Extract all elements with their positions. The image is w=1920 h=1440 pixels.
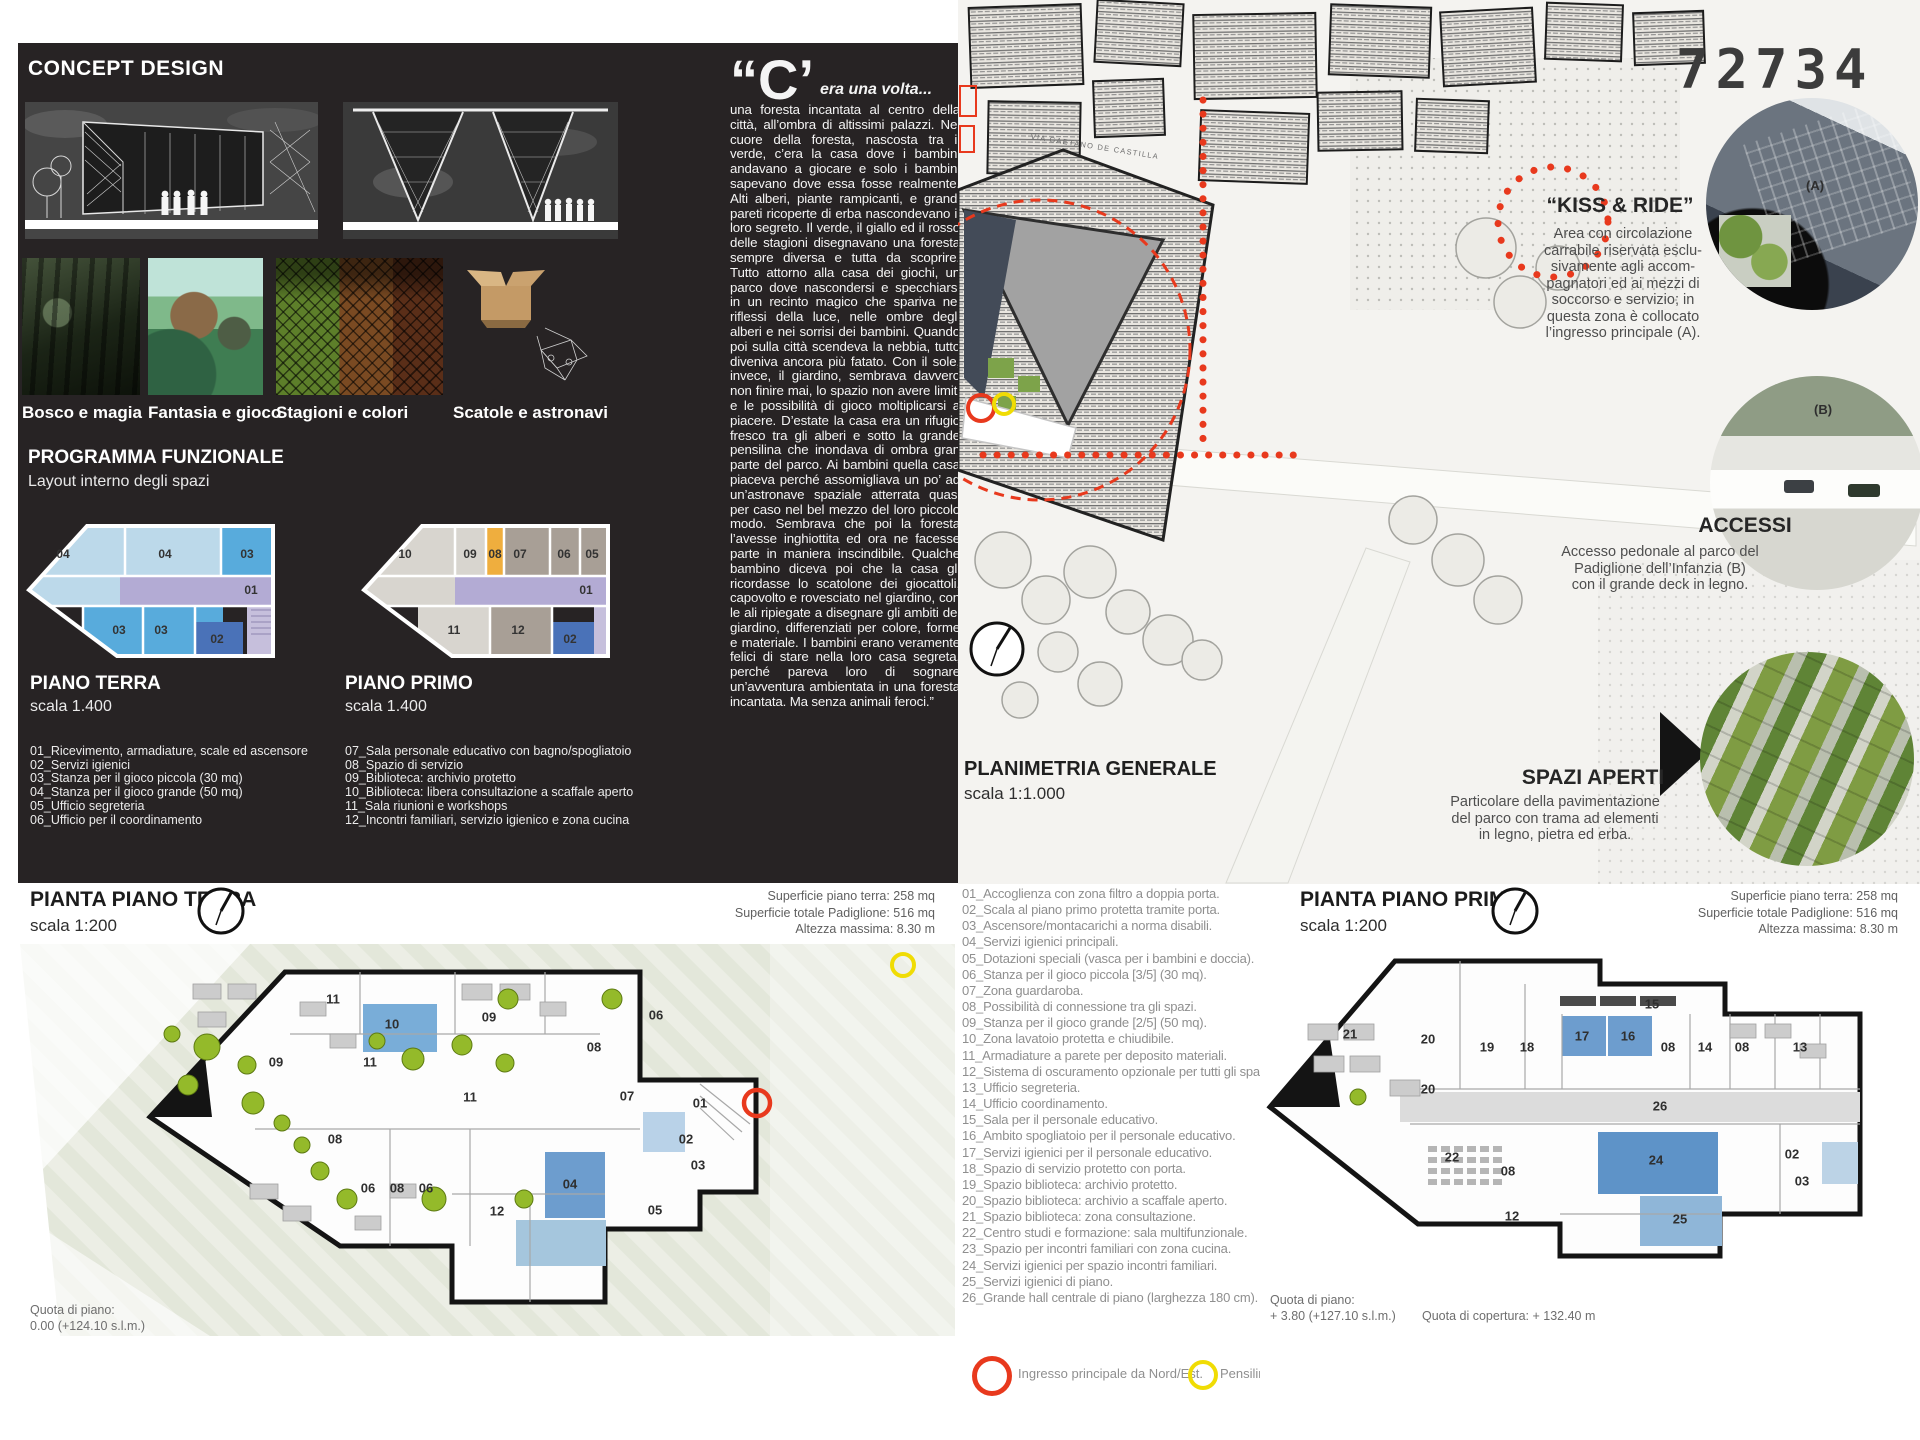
roof-quota: Quota di copertura: + 132.40 m bbox=[1422, 1308, 1595, 1324]
list-item: 11_Armadiature a parete per deposito mat… bbox=[962, 1048, 1298, 1064]
list-item: con il grande deck in legno. bbox=[1530, 577, 1790, 594]
room-number: 05 bbox=[648, 1203, 662, 1218]
room-number: 02 bbox=[563, 632, 576, 646]
north-compass-icon bbox=[1490, 886, 1540, 941]
room-number: 03 bbox=[112, 623, 125, 637]
room-number: 06 bbox=[557, 547, 570, 561]
list-item: Altezza massima: 8.30 m bbox=[735, 921, 935, 938]
room-number: 02 bbox=[210, 632, 223, 646]
room-number: 07 bbox=[513, 547, 526, 561]
site-plan: 72734 VIA GAETANO DE CASTILLA (A) (B) “K… bbox=[958, 0, 1920, 884]
list-item: 11_Sala riunioni e workshops bbox=[345, 800, 650, 814]
list-item: 02_Scala al piano primo protetta tramite… bbox=[962, 902, 1298, 918]
list-item: 07_Zona guardaroba. bbox=[962, 983, 1298, 999]
piano-terra-legend: 01_Ricevimento, armadiature, scale ed as… bbox=[30, 745, 335, 827]
thumb-label-bosco: Bosco e magia bbox=[22, 403, 142, 423]
room-number: 18 bbox=[1520, 1040, 1534, 1055]
list-item: carrabile riservata esclu- bbox=[1498, 243, 1748, 260]
room-number: 11 bbox=[448, 623, 461, 637]
room-number: 04 bbox=[56, 547, 69, 561]
room-number: 11 bbox=[363, 1055, 377, 1070]
room-number: 08 bbox=[587, 1040, 601, 1055]
list-item: 18_Spazio di servizio protetto con porta… bbox=[962, 1161, 1298, 1177]
main-entrance-marker-label: Ingresso principale da Nord/Est. bbox=[1018, 1366, 1203, 1381]
room-number: 03 bbox=[1795, 1174, 1809, 1189]
car-icon bbox=[1848, 484, 1880, 497]
list-item: Accesso pedonale al parco del bbox=[1530, 544, 1790, 561]
list-item: Superficie piano terra: 258 mq bbox=[1698, 888, 1898, 905]
concept-sketch-structure bbox=[343, 102, 618, 239]
canopy-marker-icon bbox=[1188, 1360, 1218, 1390]
competition-board: CONCEPT DESIGN bbox=[0, 0, 1920, 1440]
quota-value: + 3.80 (+127.10 s.l.m.) bbox=[1270, 1308, 1396, 1324]
room-number: 10 bbox=[398, 547, 411, 561]
room-number: 03 bbox=[154, 623, 167, 637]
room-number: 06 bbox=[649, 1008, 663, 1023]
room-number: 12 bbox=[490, 1204, 504, 1219]
quota-label: Quota di piano: bbox=[30, 1302, 145, 1318]
room-number: 15 bbox=[1645, 997, 1659, 1012]
list-item: Altezza massima: 8.30 m bbox=[1698, 921, 1898, 938]
concept-story: “C’ era una volta... una foresta incanta… bbox=[730, 55, 960, 710]
room-number: 07 bbox=[620, 1089, 634, 1104]
list-item: 25_Servizi igienici di piano. bbox=[962, 1274, 1298, 1290]
room-number: 08 bbox=[390, 1181, 404, 1196]
room-number: 09 bbox=[463, 547, 476, 561]
list-item: Superficie totale Padiglione: 516 mq bbox=[735, 905, 935, 922]
room-number: 13 bbox=[1793, 1040, 1807, 1055]
room-number: 04 bbox=[158, 547, 171, 561]
planimetria-title: PLANIMETRIA GENERALE bbox=[964, 758, 1217, 781]
room-number: 08 bbox=[1735, 1040, 1749, 1055]
list-item: Superficie totale Padiglione: 516 mq bbox=[1698, 905, 1898, 922]
accessi-text: Accesso pedonale al parco delPadiglione … bbox=[1530, 544, 1790, 594]
label-b: (B) bbox=[1814, 402, 1832, 417]
room-number: 08 bbox=[1501, 1164, 1515, 1179]
thumb-stagioni-e-colori bbox=[276, 258, 443, 395]
thumb-label-scatole: Scatole e astronavi bbox=[453, 403, 608, 423]
thumb-fantasia-e-gioco bbox=[148, 258, 263, 395]
north-compass-icon bbox=[968, 620, 1026, 683]
room-number: 01 bbox=[693, 1096, 707, 1111]
room-number: 19 bbox=[1480, 1040, 1494, 1055]
ground-floor-stats: Superficie piano terra: 258 mqSuperficie… bbox=[735, 888, 935, 938]
accessi-title: ACCESSI bbox=[1630, 514, 1860, 538]
list-item: 03_Ascensore/montacarichi a norma disabi… bbox=[962, 918, 1298, 934]
kiss-ride-text: Area con circolazionecarrabile riservata… bbox=[1498, 226, 1748, 342]
room-number: 25 bbox=[1673, 1212, 1687, 1227]
list-item: 03_Stanza per il gioco piccola (30 mq) bbox=[30, 772, 335, 786]
list-item: 01_Accoglienza con zona filtro a doppia … bbox=[962, 886, 1298, 902]
list-item: Area con circolazione bbox=[1498, 226, 1748, 243]
room-number: 08 bbox=[328, 1132, 342, 1147]
list-item: 08_Spazio di servizio bbox=[345, 759, 650, 773]
ground-floor-quadrant: 11100906080911110701080203060806041205 P… bbox=[0, 884, 958, 1440]
quota-copertura: Quota di copertura: + 132.40 m bbox=[1422, 1308, 1595, 1324]
list-item: 09_Stanza per il gioco grande [2/5] (50 … bbox=[962, 1015, 1298, 1031]
ground-floor-quota: Quota di piano: 0.00 (+124.10 s.l.m.) bbox=[30, 1302, 145, 1334]
list-item: l’ingresso principale (A). bbox=[1498, 325, 1748, 342]
mini-plan-piano-terra: 04040301030302 bbox=[25, 518, 278, 663]
first-floor-quota: Quota di piano: + 3.80 (+127.10 s.l.m.) bbox=[1270, 1292, 1396, 1324]
list-item: 04_Stanza per il gioco grande (50 mq) bbox=[30, 786, 335, 800]
list-item: 05_Ufficio segreteria bbox=[30, 800, 335, 814]
room-number: 09 bbox=[482, 1010, 496, 1025]
list-item: 08_Possibilità di connessione tra gli sp… bbox=[962, 999, 1298, 1015]
ground-floor-room-numbers: 11100906080911110701080203060806041205 bbox=[0, 884, 958, 1440]
list-item: 26_Grande hall centrale di piano (larghe… bbox=[962, 1290, 1298, 1306]
thumb-label-fantasia: Fantasia e gioco bbox=[148, 403, 281, 423]
list-item: 15_Sala per il personale educativo. bbox=[962, 1112, 1298, 1128]
list-item: in legno, pietra ed erba. bbox=[1440, 827, 1670, 844]
first-floor-scale: scala 1:200 bbox=[1300, 916, 1387, 936]
paving-joint-lines bbox=[1700, 652, 1914, 866]
room-number: 03 bbox=[691, 1158, 705, 1173]
list-item: 23_Spazio per incontri familiari con zon… bbox=[962, 1241, 1298, 1257]
first-floor-room-numbers: 1521201918171608140813202622082402032512 bbox=[1260, 884, 1920, 1440]
main-entrance-marker-icon bbox=[972, 1356, 1012, 1396]
room-number: 20 bbox=[1421, 1032, 1435, 1047]
room-number: 12 bbox=[511, 623, 524, 637]
detail-photo-paving bbox=[1700, 652, 1914, 866]
piano-primo-title: PIANO PRIMO bbox=[345, 673, 473, 695]
list-item: 12_Incontri familiari, servizio igienico… bbox=[345, 814, 650, 828]
mini-terra-room-numbers: 04040301030302 bbox=[25, 518, 278, 663]
list-item: soccorso e servizio; in bbox=[1498, 292, 1748, 309]
room-number: 03 bbox=[240, 547, 253, 561]
north-compass-icon bbox=[196, 886, 246, 941]
list-item: Padiglione dell’Infanzia (B) bbox=[1530, 561, 1790, 578]
room-number: 09 bbox=[269, 1055, 283, 1070]
room-legend: 01_Accoglienza con zona filtro a doppia … bbox=[962, 886, 1298, 1306]
list-item: Particolare della pavimentazione bbox=[1440, 794, 1670, 811]
list-item: 09_Biblioteca: archivio protetto bbox=[345, 772, 650, 786]
board-number: 72734 bbox=[1676, 38, 1874, 101]
list-item: 04_Servizi igienici principali. bbox=[962, 934, 1298, 950]
list-item: 10_Biblioteca: libera consultazione a sc… bbox=[345, 786, 650, 800]
kiss-ride-title: “KISS & RIDE” bbox=[1503, 194, 1737, 218]
room-number: 06 bbox=[361, 1181, 375, 1196]
programma-title: PROGRAMMA FUNZIONALE bbox=[28, 447, 284, 469]
piano-terra-title: PIANO TERRA bbox=[30, 673, 161, 695]
room-number: 05 bbox=[585, 547, 598, 561]
spazi-aperti-text: Particolare della pavimentazionedel parc… bbox=[1440, 794, 1670, 844]
mini-plan-piano-primo: 10090807060501111202 bbox=[360, 518, 613, 663]
programma-subtitle: Layout interno degli spazi bbox=[28, 473, 209, 491]
ground-floor-scale: scala 1:200 bbox=[30, 916, 117, 936]
list-item: 07_Sala personale educativo con bagno/sp… bbox=[345, 745, 650, 759]
concept-panel: CONCEPT DESIGN bbox=[18, 43, 958, 883]
room-number: 12 bbox=[1505, 1209, 1519, 1224]
room-number: 16 bbox=[1621, 1029, 1635, 1044]
room-number: 08 bbox=[1661, 1040, 1675, 1055]
list-item: 01_Ricevimento, armadiature, scale ed as… bbox=[30, 745, 335, 759]
list-item: 02_Servizi igienici bbox=[30, 759, 335, 773]
list-item: 10_Zona lavatoio protetta e chiudibile. bbox=[962, 1031, 1298, 1047]
quota-label: Quota di piano: bbox=[1270, 1292, 1396, 1308]
story-body: una foresta incantata al centro della ci… bbox=[730, 103, 960, 710]
room-number: 10 bbox=[385, 1017, 399, 1032]
room-number: 24 bbox=[1649, 1153, 1663, 1168]
list-item: 24_Servizi igienici per spazio incontri … bbox=[962, 1258, 1298, 1274]
room-number: 11 bbox=[326, 992, 340, 1007]
list-item: 05_Dotazioni speciali (vasca per i bambi… bbox=[962, 951, 1298, 967]
list-item: pagnatori ed ai mezzi di bbox=[1498, 276, 1748, 293]
story-lead: era una volta... bbox=[820, 55, 932, 99]
quota-value: 0.00 (+124.10 s.l.m.) bbox=[30, 1318, 145, 1334]
piano-primo-legend: 07_Sala personale educativo con bagno/sp… bbox=[345, 745, 650, 827]
room-number: 01 bbox=[579, 583, 592, 597]
list-item: 16_Ambito spogliatoio per il personale e… bbox=[962, 1128, 1298, 1144]
room-number: 20 bbox=[1421, 1082, 1435, 1097]
list-item: questa zona è collocato bbox=[1498, 309, 1748, 326]
list-item: del parco con trama ad elementi bbox=[1440, 811, 1670, 828]
story-dropcap: “C’ bbox=[730, 57, 814, 103]
spazi-aperti-title: SPAZI APERTI bbox=[1478, 766, 1708, 790]
concept-sketch-pavilion bbox=[25, 102, 318, 239]
room-number: 21 bbox=[1343, 1027, 1357, 1042]
room-number: 26 bbox=[1653, 1099, 1667, 1114]
room-number: 17 bbox=[1575, 1029, 1589, 1044]
first-floor-quadrant: 1521201918171608140813202622082402032512… bbox=[1260, 884, 1920, 1440]
list-item: 21_Spazio biblioteca: zona consultazione… bbox=[962, 1209, 1298, 1225]
list-item: 19_Spazio biblioteca: archivio protetto. bbox=[962, 1177, 1298, 1193]
room-number: 11 bbox=[463, 1090, 477, 1105]
list-item: 20_Spazio biblioteca: archivio a scaffal… bbox=[962, 1193, 1298, 1209]
list-item: 13_Ufficio segreteria. bbox=[962, 1080, 1298, 1096]
label-a: (A) bbox=[1806, 178, 1824, 193]
list-item: 06_Stanza per il gioco piccola [3/5] (30… bbox=[962, 967, 1298, 983]
list-item: 22_Centro studi e formazione: sala multi… bbox=[962, 1225, 1298, 1241]
piano-terra-scale: scala 1.400 bbox=[30, 698, 112, 716]
mini-primo-room-numbers: 10090807060501111202 bbox=[360, 518, 613, 663]
concept-title: CONCEPT DESIGN bbox=[28, 57, 224, 81]
room-number: 06 bbox=[419, 1181, 433, 1196]
room-number: 14 bbox=[1698, 1040, 1712, 1055]
list-item: 14_Ufficio coordinamento. bbox=[962, 1096, 1298, 1112]
thumb-bosco-e-magia bbox=[22, 258, 140, 395]
piano-primo-scale: scala 1.400 bbox=[345, 698, 427, 716]
thumb-scatole-e-astronavi bbox=[453, 258, 598, 395]
room-number: 04 bbox=[563, 1177, 577, 1192]
list-item: sivamente agli accom- bbox=[1498, 259, 1748, 276]
room-number: 02 bbox=[679, 1132, 693, 1147]
list-item: Superficie piano terra: 258 mq bbox=[735, 888, 935, 905]
car-icon bbox=[1784, 480, 1814, 493]
list-item: 06_Ufficio per il coordinamento bbox=[30, 814, 335, 828]
first-floor-stats: Superficie piano terra: 258 mqSuperficie… bbox=[1698, 888, 1898, 938]
room-number: 02 bbox=[1785, 1147, 1799, 1162]
room-number: 22 bbox=[1445, 1150, 1459, 1165]
planimetria-scale: scala 1:1.000 bbox=[964, 784, 1065, 804]
list-item: 12_Sistema di oscuramento opzionale per … bbox=[962, 1064, 1298, 1080]
thumb-label-stagioni: Stagioni e colori bbox=[276, 403, 408, 423]
room-number: 01 bbox=[244, 583, 257, 597]
room-number: 08 bbox=[488, 547, 501, 561]
list-item: 17_Servizi igienici per il personale edu… bbox=[962, 1145, 1298, 1161]
